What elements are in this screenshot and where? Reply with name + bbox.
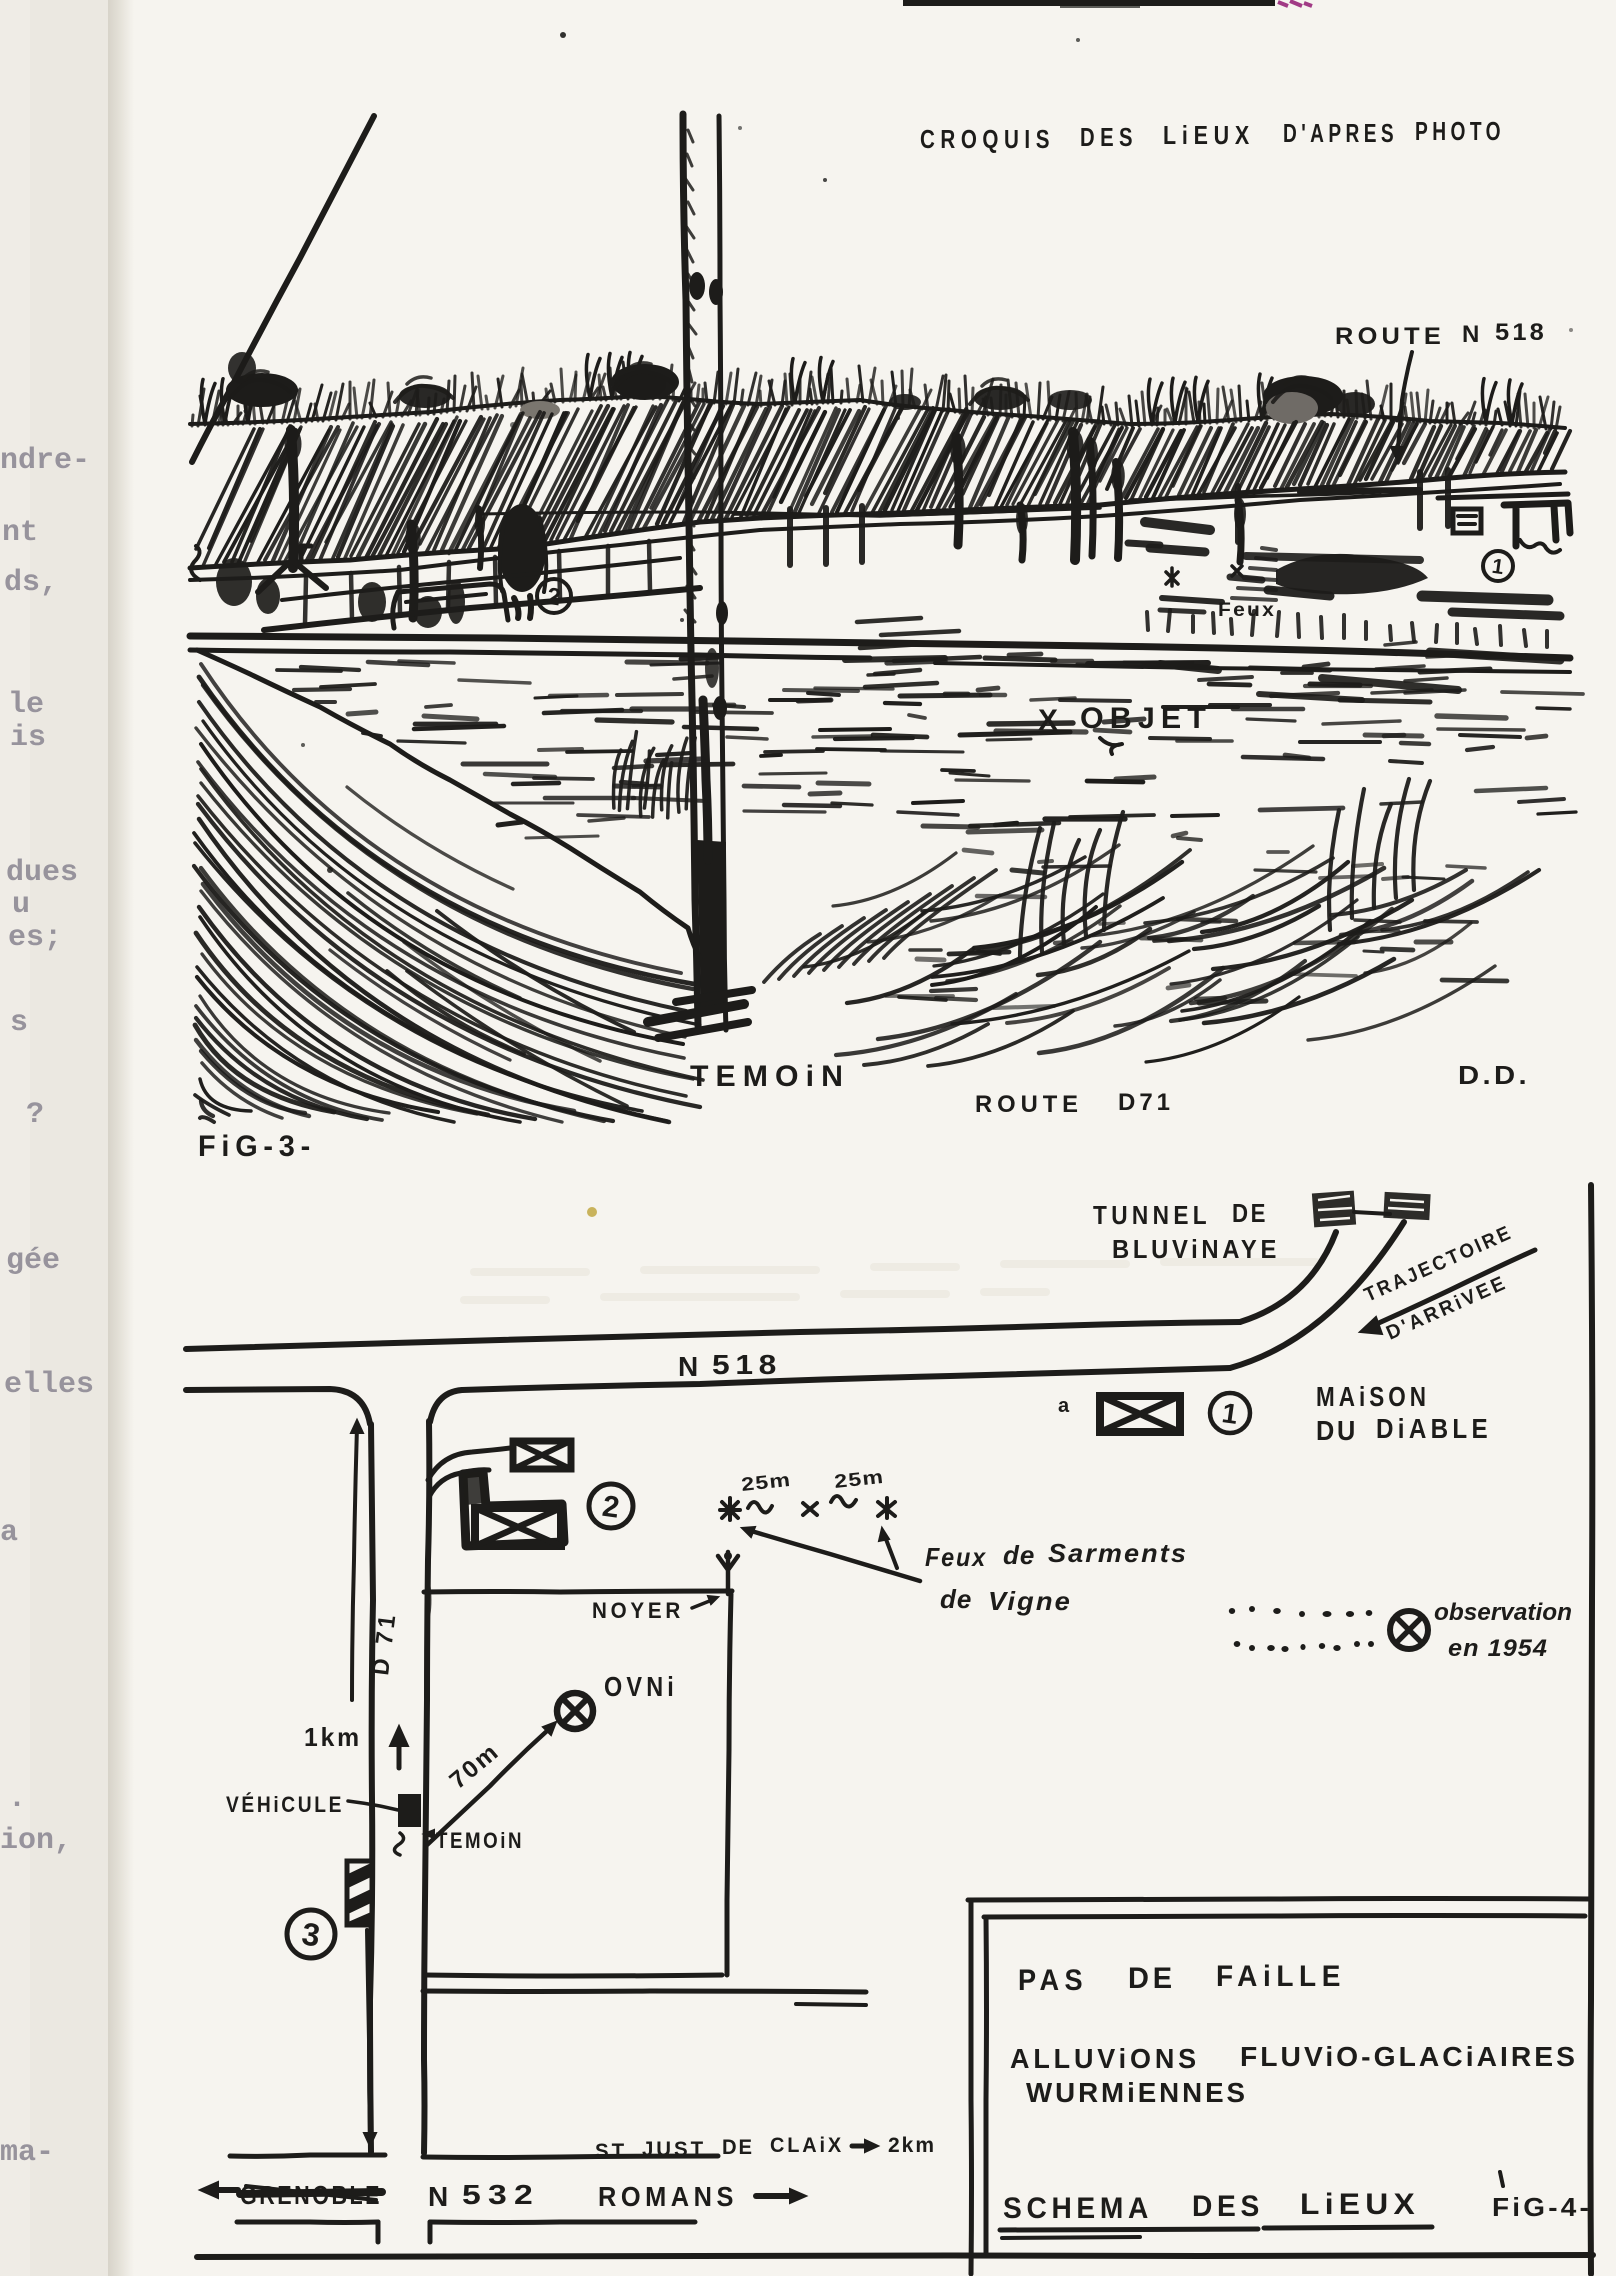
svg-text:de: de	[940, 1584, 972, 1614]
svg-text:N: N	[1462, 321, 1481, 348]
svg-text:ALLUViONS: ALLUViONS	[1010, 2043, 1200, 2074]
svg-text:TEMOiN: TEMOiN	[690, 1060, 850, 1093]
svg-text:ds,: ds,	[4, 566, 58, 600]
svg-text:CLAiX: CLAiX	[770, 2134, 844, 2157]
svg-text:es;: es;	[8, 921, 62, 955]
svg-text:LiEUX: LiEUX	[1163, 120, 1255, 150]
svg-text:PHOTO: PHOTO	[1415, 116, 1505, 146]
svg-text:2km: 2km	[888, 2134, 936, 2157]
svg-text:DES: DES	[1192, 2190, 1264, 2223]
svg-text:de: de	[1003, 1540, 1035, 1570]
svg-text:532: 532	[462, 2179, 540, 2210]
svg-text:is: is	[10, 721, 46, 755]
svg-text:elles: elles	[4, 1368, 94, 1402]
svg-text:518: 518	[712, 1349, 782, 1380]
svg-text:Sarments: Sarments	[1048, 1538, 1188, 1568]
svg-text:DU: DU	[1316, 1415, 1358, 1446]
svg-text:ROMANS: ROMANS	[598, 2181, 738, 2212]
svg-text:JUST: JUST	[642, 2138, 706, 2161]
svg-text:FiG-4-: FiG-4-	[1492, 2192, 1592, 2222]
svg-text:FiG-3-: FiG-3-	[198, 1130, 316, 1163]
svg-text:TEMOiN: TEMOiN	[436, 1828, 524, 1853]
svg-text:NOYER: NOYER	[592, 1598, 684, 1623]
svg-text:OVNi: OVNi	[604, 1671, 678, 1702]
svg-text:Feux: Feux	[925, 1542, 987, 1572]
svg-text:s: s	[10, 1006, 28, 1040]
svg-text:Feux: Feux	[1218, 600, 1276, 621]
svg-text:X: X	[1038, 704, 1060, 737]
svg-text:WURMiENNES: WURMiENNES	[1026, 2077, 1248, 2108]
svg-text:OBJET: OBJET	[1080, 702, 1212, 735]
svg-text:VÉHiCULE: VÉHiCULE	[226, 1792, 344, 1817]
svg-text:D'APRES: D'APRES	[1283, 118, 1398, 148]
svg-text:D.D.: D.D.	[1458, 1060, 1530, 1090]
svg-text:DE: DE	[1232, 1198, 1268, 1228]
svg-text:Vigne: Vigne	[988, 1586, 1072, 1616]
svg-text:CROQUIS: CROQUIS	[920, 124, 1055, 154]
svg-text:nt: nt	[2, 516, 38, 550]
svg-text:FAiLLE: FAiLLE	[1216, 1960, 1346, 1993]
svg-text:a: a	[1058, 1395, 1070, 1417]
svg-text:dues: dues	[6, 856, 78, 890]
svg-text:DiABLE: DiABLE	[1376, 1413, 1492, 1444]
svg-text:?: ?	[26, 1098, 44, 1132]
svg-text:ROUTE: ROUTE	[975, 1091, 1083, 1118]
svg-text:a: a	[0, 1516, 18, 1550]
svg-text:ROUTE: ROUTE	[1335, 323, 1445, 350]
svg-text:PAS: PAS	[1018, 1964, 1088, 1997]
svg-text:DE: DE	[1128, 1962, 1176, 1995]
svg-text:ion,: ion,	[0, 1824, 72, 1858]
svg-text:N: N	[678, 1351, 700, 1382]
svg-text:DES: DES	[1080, 122, 1138, 152]
svg-text:D71: D71	[1118, 1089, 1174, 1116]
svg-text:en 1954: en 1954	[1448, 1635, 1548, 1662]
svg-text:518: 518	[1495, 319, 1547, 346]
svg-text:FLUViO-GLACiAIRES: FLUViO-GLACiAIRES	[1240, 2041, 1578, 2072]
svg-text:le: le	[8, 688, 44, 722]
svg-text:ST: ST	[595, 2140, 627, 2163]
svg-text:ma-: ma-	[0, 2136, 54, 2170]
svg-text:u: u	[12, 888, 30, 922]
svg-text:LiEUX: LiEUX	[1300, 2188, 1420, 2221]
svg-text:N: N	[428, 2181, 450, 2212]
svg-text:DE: DE	[722, 2136, 754, 2159]
svg-text:MAiSON: MAiSON	[1316, 1381, 1430, 1412]
svg-text:ndre-: ndre-	[0, 444, 90, 478]
svg-text:BLUViNAYE: BLUViNAYE	[1112, 1234, 1280, 1264]
svg-text:1km: 1km	[304, 1722, 362, 1752]
svg-text:TUNNEL: TUNNEL	[1093, 1200, 1211, 1230]
svg-text:observation: observation	[1434, 1599, 1572, 1626]
svg-text:.: .	[8, 1782, 26, 1816]
svg-text:SCHEMA: SCHEMA	[1003, 2192, 1153, 2225]
svg-text:gée: gée	[6, 1244, 60, 1278]
